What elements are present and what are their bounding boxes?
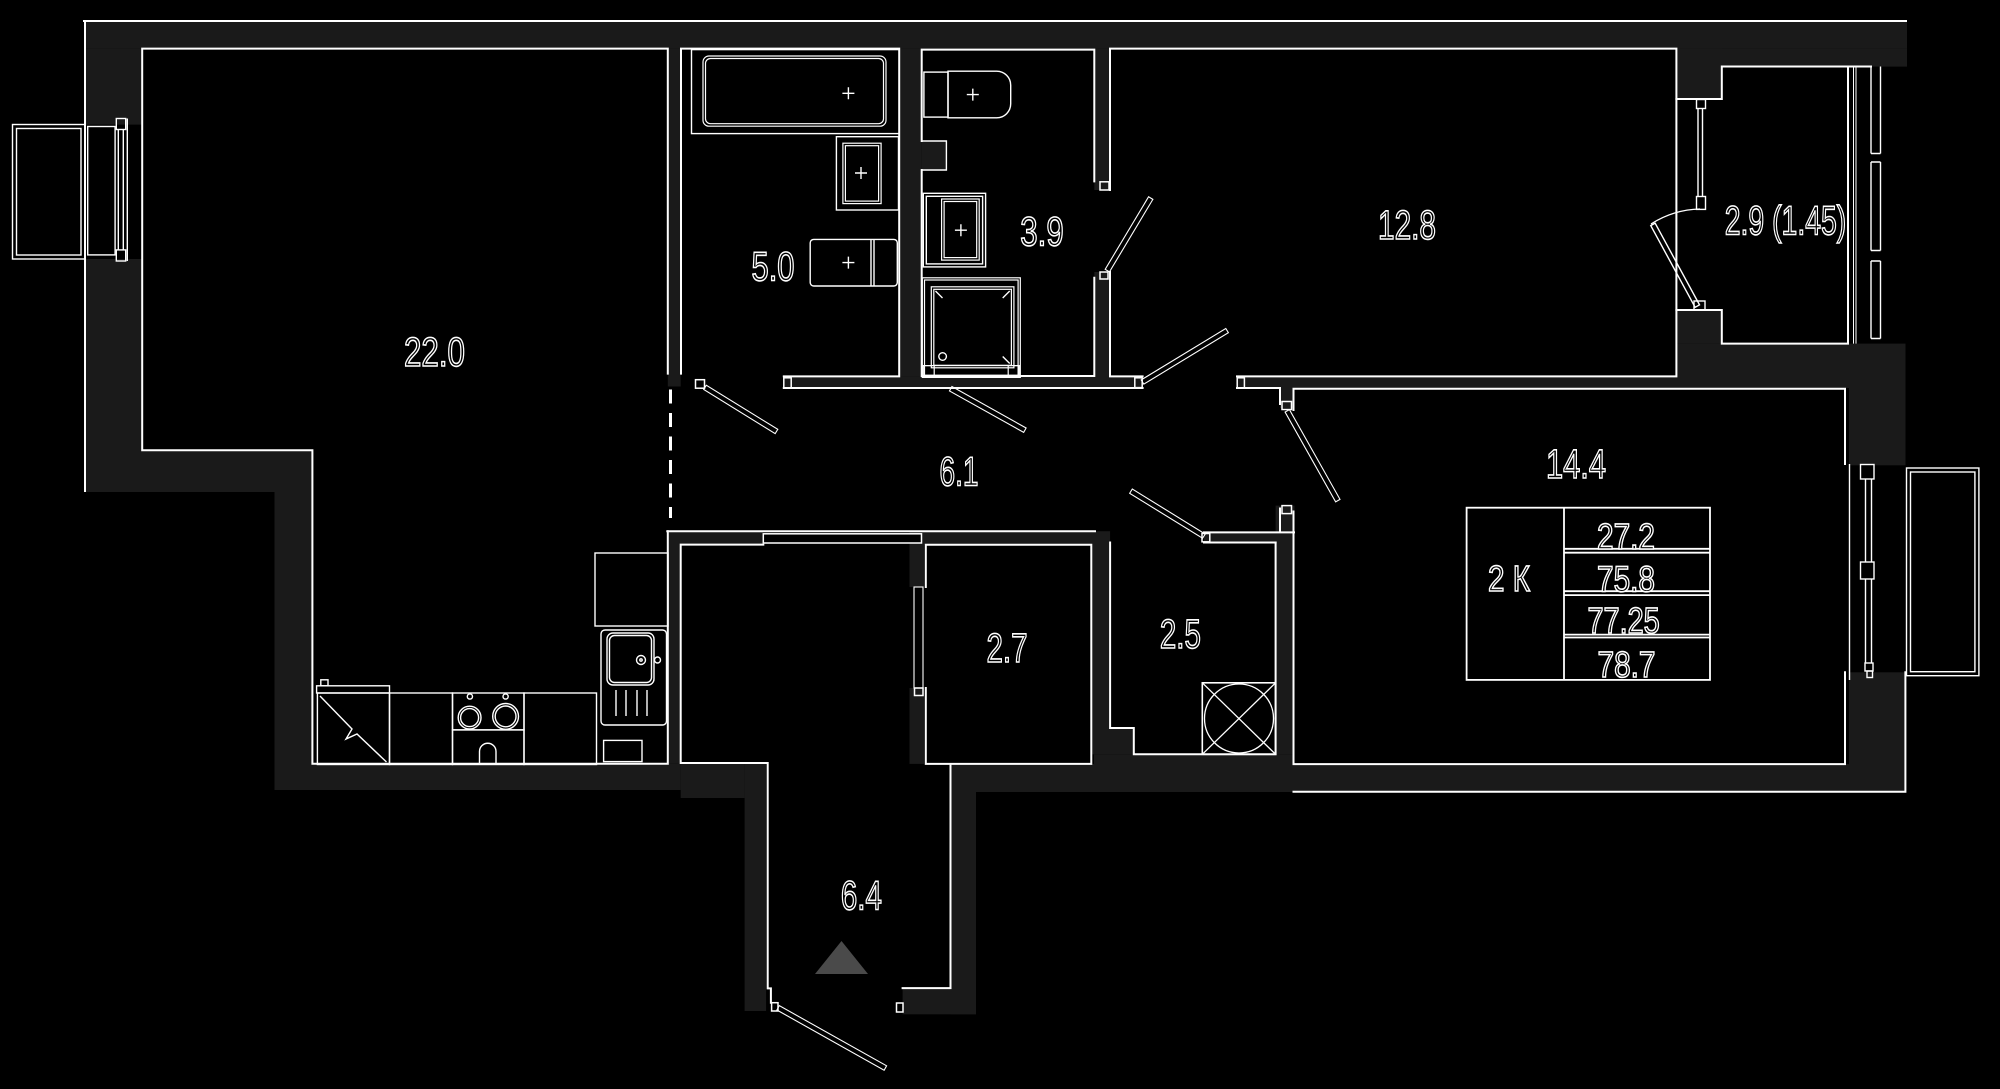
- svg-text:2.5: 2.5: [1160, 611, 1201, 657]
- svg-text:2 К: 2 К: [1488, 558, 1531, 599]
- svg-text:75.8: 75.8: [1597, 559, 1655, 600]
- svg-text:78.7: 78.7: [1598, 644, 1656, 685]
- svg-text:3.9: 3.9: [1020, 208, 1063, 254]
- svg-text:2.7: 2.7: [987, 625, 1028, 671]
- svg-text:14.4: 14.4: [1546, 441, 1606, 487]
- svg-text:27.2: 27.2: [1597, 516, 1655, 557]
- svg-text:77.25: 77.25: [1587, 600, 1659, 641]
- svg-text:6.4: 6.4: [841, 872, 882, 918]
- svg-text:22.0: 22.0: [404, 329, 465, 375]
- svg-text:5.0: 5.0: [752, 244, 795, 290]
- svg-text:2.9 (1.45): 2.9 (1.45): [1725, 198, 1847, 244]
- svg-text:6.1: 6.1: [940, 449, 979, 495]
- svg-text:12.8: 12.8: [1378, 202, 1436, 248]
